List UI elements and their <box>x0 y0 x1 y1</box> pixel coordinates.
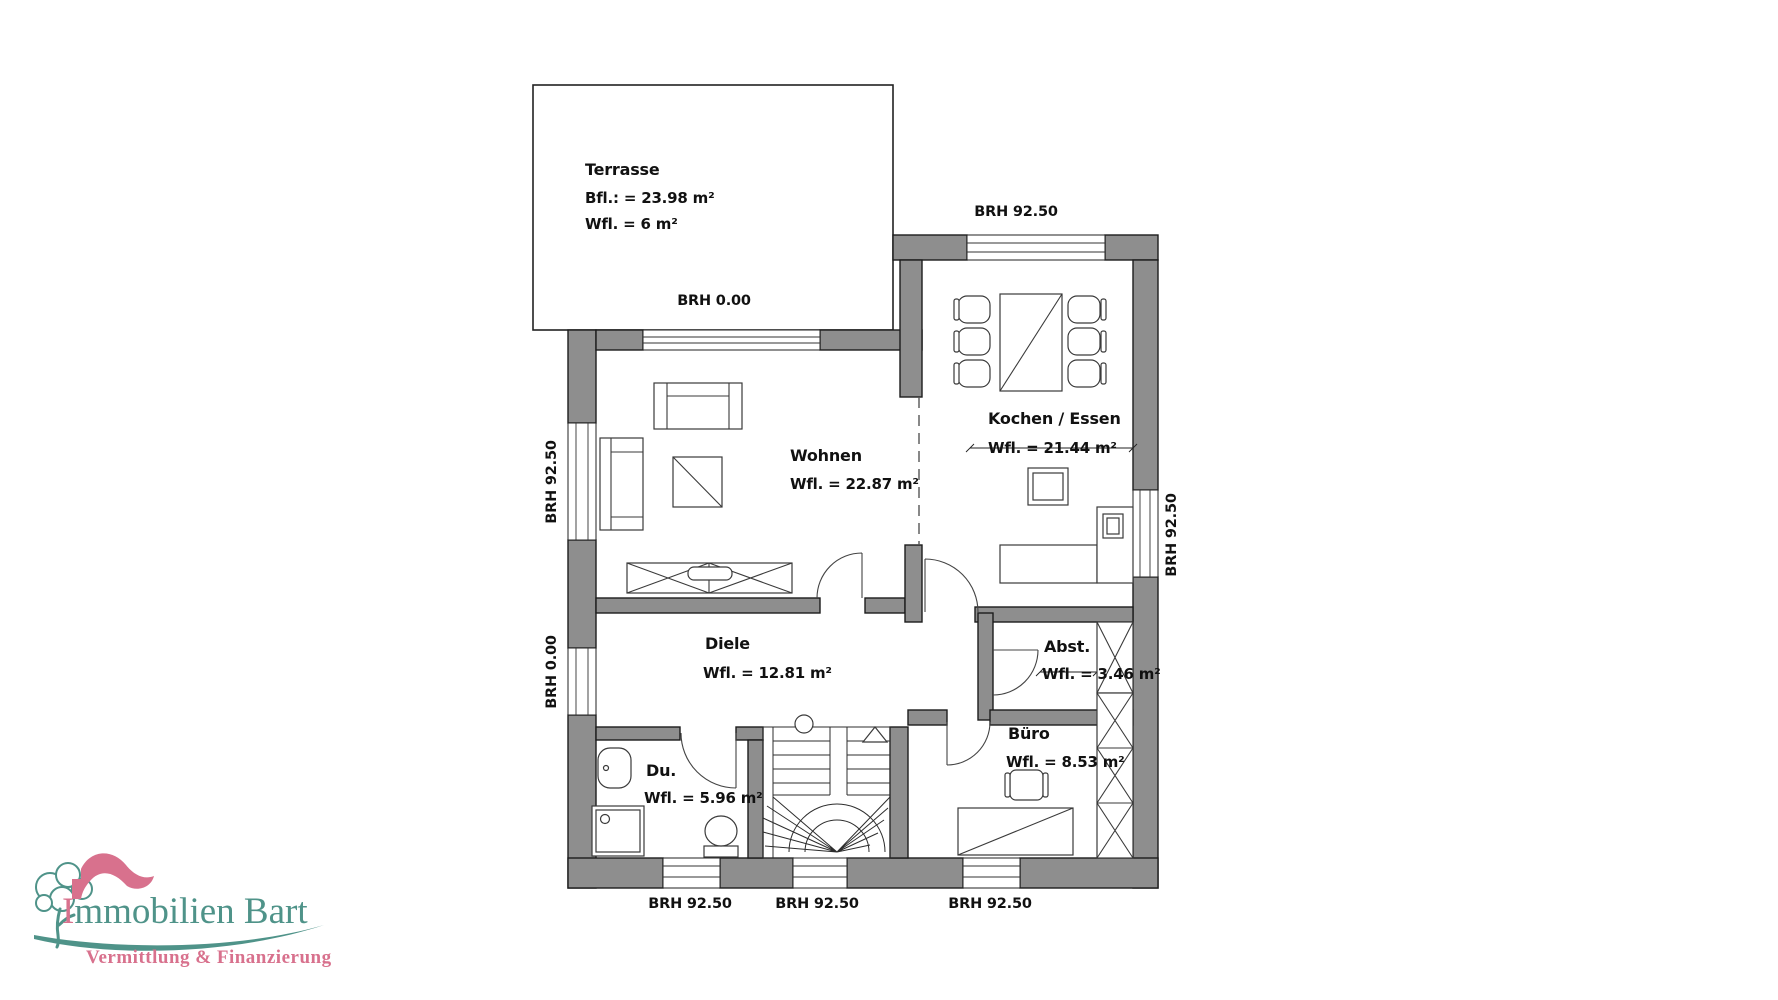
washbasin <box>598 748 631 788</box>
window-kitchen-east <box>1133 490 1158 577</box>
wall-segment <box>865 598 905 613</box>
label-brh-terrace: BRH 0.00 <box>677 293 751 309</box>
window-terrace-door <box>643 330 820 350</box>
window-buero-south <box>963 858 1020 888</box>
label-du-name: Du. <box>646 761 676 780</box>
label-buero-name: Büro <box>1008 724 1050 743</box>
wall-segment <box>978 613 993 720</box>
dining-chair <box>954 296 990 323</box>
label-diele-name: Diele <box>705 634 750 653</box>
label-du-wfl: Wfl. = 5.96 m² <box>644 789 763 807</box>
wall-segment <box>893 235 967 260</box>
label-kochen-name: Kochen / Essen <box>988 409 1121 428</box>
stove <box>1028 468 1068 505</box>
wall-segment <box>890 727 908 858</box>
shower <box>592 806 644 856</box>
armchair <box>600 438 643 530</box>
label-abst-wfl: Wfl. = 3.46 m² <box>1042 665 1161 683</box>
label-brh-top: BRH 92.50 <box>974 204 1058 220</box>
wall-segment <box>596 330 643 350</box>
dining-chair <box>954 360 990 387</box>
label-brh-left-lower: BRH 0.00 <box>544 635 560 709</box>
kitchen-sink <box>1103 514 1123 538</box>
office-chair <box>1005 770 1048 800</box>
label-terrasse-wfl: Wfl. = 6 m² <box>585 215 678 233</box>
door-wohnen <box>817 553 862 598</box>
floor-plan-page: Terrasse Bfl.: = 23.98 m² Wfl. = 6 m² BR… <box>0 0 1778 1000</box>
desk <box>958 808 1073 855</box>
dining-chair <box>954 328 990 355</box>
window-du-south <box>663 858 720 888</box>
label-brh-bottom-center: BRH 92.50 <box>775 896 859 912</box>
label-brh-right: BRH 92.50 <box>1164 493 1180 577</box>
wall-segment <box>596 727 680 740</box>
dining-chair <box>1068 360 1106 387</box>
label-wohnen-name: Wohnen <box>790 446 862 465</box>
sideboard <box>627 563 792 593</box>
staircase <box>763 715 890 858</box>
dining-chair <box>1068 296 1106 323</box>
wall-segment <box>1105 235 1158 260</box>
label-diele-wfl: Wfl. = 12.81 m² <box>703 664 832 682</box>
label-terrasse-name: Terrasse <box>585 160 660 179</box>
wall-segment <box>908 710 947 725</box>
company-logo: Immobilien Bart Vermittlung & Finanzieru… <box>28 845 338 995</box>
company-name: Immobilien Bart <box>62 893 308 930</box>
office-cabinet <box>1097 693 1133 858</box>
wall-segment <box>568 858 663 888</box>
label-wohnen-wfl: Wfl. = 22.87 m² <box>790 475 919 493</box>
door-kochen <box>925 559 978 612</box>
wall-segment <box>1133 260 1158 490</box>
wall-segment <box>905 545 922 622</box>
wall-segment <box>900 260 922 397</box>
label-brh-bottom-right: BRH 92.50 <box>948 896 1032 912</box>
wall-segment <box>736 727 763 740</box>
label-buero-wfl: Wfl. = 8.53 m² <box>1006 753 1125 771</box>
wall-segment <box>975 607 1133 622</box>
dining-chair <box>1068 328 1106 355</box>
wall-segment <box>568 330 596 423</box>
wall-segment <box>568 540 596 648</box>
label-terrasse-bfl: Bfl.: = 23.98 m² <box>585 189 714 207</box>
window-stairs-south <box>793 858 847 888</box>
door-du <box>681 733 736 788</box>
stair-newel <box>795 715 813 733</box>
window-diele-west <box>568 648 596 715</box>
window-kitchen-north <box>967 235 1105 260</box>
wall-segment <box>1133 577 1158 888</box>
sofa <box>654 383 742 429</box>
wall-segment <box>1020 858 1158 888</box>
label-brh-bottom-left: BRH 92.50 <box>648 896 732 912</box>
wall-segment <box>847 858 963 888</box>
window-wohnen-west <box>568 423 596 540</box>
coffee-table <box>673 457 722 507</box>
toilet <box>704 816 738 857</box>
company-tagline: Vermittlung & Finanzierung <box>86 947 332 969</box>
label-abst-name: Abst. <box>1044 637 1090 656</box>
label-kochen-wfl: Wfl. = 21.44 m² <box>988 439 1117 457</box>
stair-direction-arrow <box>863 727 887 742</box>
wall-segment <box>720 858 793 888</box>
wall-segment <box>596 598 820 613</box>
label-brh-left-upper: BRH 92.50 <box>544 440 560 524</box>
dining-table <box>1000 294 1062 391</box>
door-buero <box>947 722 990 765</box>
door-abst <box>993 650 1038 695</box>
